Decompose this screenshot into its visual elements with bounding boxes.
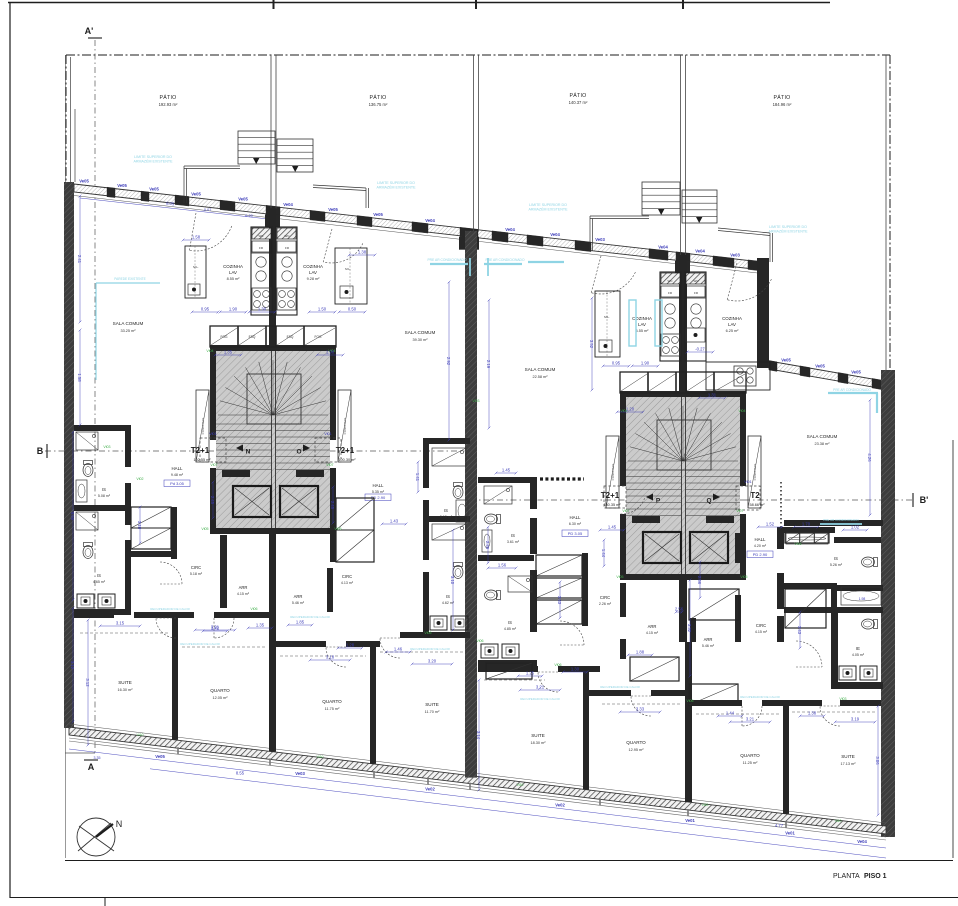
svg-text:3.18: 3.18 — [137, 521, 142, 530]
svg-text:Ve05: Ve05 — [851, 370, 861, 375]
svg-text:1.30: 1.30 — [571, 667, 580, 672]
svg-text:3.43: 3.43 — [557, 596, 562, 605]
svg-text:IS: IS — [444, 508, 448, 513]
svg-text:N: N — [246, 449, 251, 456]
svg-text:Vi06: Vi06 — [250, 607, 257, 611]
svg-text:Ve04: Ve04 — [505, 227, 515, 232]
svg-text:9.48 m²: 9.48 m² — [171, 473, 184, 477]
svg-text:CONDUTAS: CONDUTAS — [753, 464, 757, 481]
svg-text:P: P — [656, 498, 661, 505]
svg-text:102.55 m²: 102.55 m² — [193, 458, 211, 462]
svg-text:4.77: 4.77 — [775, 823, 784, 828]
svg-text:RECUPERADOR DE CALOR: RECUPERADOR DE CALOR — [740, 695, 780, 699]
svg-text:Vi05: Vi05 — [616, 575, 623, 579]
svg-text:IS: IS — [511, 533, 515, 538]
svg-text:5.15 m²: 5.15 m² — [440, 515, 453, 519]
svg-text:12.95 m²: 12.95 m² — [629, 748, 645, 752]
svg-text:3.15: 3.15 — [116, 621, 125, 626]
svg-text:1.38: 1.38 — [358, 250, 367, 255]
svg-text:3.01: 3.01 — [211, 625, 220, 630]
svg-text:HALL: HALL — [755, 537, 767, 542]
svg-text:SUITE: SUITE — [841, 754, 855, 759]
svg-text:Ve05: Ve05 — [117, 183, 127, 188]
svg-text:5.46 m²: 5.46 m² — [292, 601, 305, 605]
svg-text:IS: IS — [508, 620, 512, 625]
svg-text:ESQ: ESQ — [287, 335, 294, 339]
svg-text:Ve05: Ve05 — [191, 191, 201, 196]
svg-text:PD 2.90: PD 2.90 — [753, 552, 768, 557]
svg-text:LAV: LAV — [229, 270, 237, 275]
svg-text:1.20: 1.20 — [626, 407, 635, 412]
svg-text:Ve05: Ve05 — [373, 212, 383, 217]
svg-text:0.95: 0.95 — [201, 307, 210, 312]
svg-text:2.26 m²: 2.26 m² — [599, 602, 612, 606]
svg-text:O: O — [296, 449, 301, 456]
svg-text:Ve05: Ve05 — [815, 363, 825, 368]
svg-text:6.25 m²: 6.25 m² — [726, 329, 740, 333]
svg-text:Vi01: Vi01 — [744, 480, 752, 484]
svg-text:ARR: ARR — [239, 585, 248, 590]
svg-text:RECUPERADOR DE CALOR: RECUPERADOR DE CALOR — [150, 607, 190, 611]
svg-text:ESQ: ESQ — [249, 335, 256, 339]
svg-text:T2+1: T2+1 — [601, 491, 620, 500]
svg-text:Vi04: Vi04 — [206, 349, 213, 353]
svg-text:QUARTO: QUARTO — [626, 740, 646, 745]
svg-text:RECUPERADOR DE CALOR: RECUPERADOR DE CALOR — [520, 697, 560, 701]
svg-text:A': A' — [85, 26, 94, 36]
svg-text:A: A — [88, 762, 95, 772]
svg-text:2.45: 2.45 — [485, 541, 490, 550]
svg-text:4.15 m²: 4.15 m² — [646, 631, 659, 635]
svg-text:HALL: HALL — [570, 515, 582, 520]
svg-text:1.44: 1.44 — [601, 549, 606, 558]
svg-text:IS: IS — [97, 573, 101, 578]
svg-text:FOG: FOG — [221, 335, 228, 339]
svg-text:140.37 m²: 140.37 m² — [569, 100, 588, 105]
svg-text:Ve05: Ve05 — [328, 207, 338, 212]
svg-text:QUARTO: QUARTO — [740, 753, 760, 758]
svg-text:39.30 m²: 39.30 m² — [413, 338, 429, 342]
svg-text:4.65 m²: 4.65 m² — [93, 580, 106, 584]
svg-text:Vi07: Vi07 — [210, 463, 217, 467]
svg-text:-0.27: -0.27 — [695, 347, 705, 352]
svg-text:PISO 1: PISO 1 — [864, 873, 887, 880]
svg-text:12.05 m²: 12.05 m² — [213, 696, 229, 700]
svg-text:1.56: 1.56 — [498, 563, 507, 568]
svg-text:192.93 m²: 192.93 m² — [159, 102, 178, 107]
svg-text:9.28 m²: 9.28 m² — [307, 277, 321, 281]
svg-text:8.55 m²: 8.55 m² — [227, 277, 241, 281]
svg-text:WC: WC — [285, 234, 291, 238]
svg-text:1.25: 1.25 — [526, 671, 535, 676]
svg-text:PLANTA: PLANTA — [833, 873, 860, 880]
svg-text:Vi04: Vi04 — [738, 409, 745, 413]
svg-text:1.44: 1.44 — [726, 711, 735, 716]
svg-text:6.30 m²: 6.30 m² — [569, 522, 582, 526]
svg-text:ARR: ARR — [704, 637, 713, 642]
svg-text:2.92: 2.92 — [446, 357, 451, 366]
svg-text:58.66 m²: 58.66 m² — [750, 503, 766, 507]
svg-text:3.06: 3.06 — [875, 756, 880, 765]
svg-text:Ve03: Ve03 — [295, 771, 305, 776]
svg-text:ARMAZÉM EXISTENTE: ARMAZÉM EXISTENTE — [769, 229, 809, 234]
svg-text:16.30 m²: 16.30 m² — [118, 688, 134, 692]
svg-text:COZINHA: COZINHA — [303, 264, 323, 269]
svg-text:Vi05: Vi05 — [334, 527, 341, 531]
svg-text:1.46: 1.46 — [394, 647, 403, 652]
svg-text:11.25 m²: 11.25 m² — [743, 761, 758, 765]
svg-text:Vi05: Vi05 — [201, 527, 208, 531]
svg-text:3.12: 3.12 — [85, 678, 90, 687]
svg-text:PAREDE EXISTENTE: PAREDE EXISTENTE — [114, 277, 145, 281]
svg-text:1.35: 1.35 — [224, 350, 233, 355]
svg-text:5.18 m²: 5.18 m² — [190, 572, 203, 576]
svg-text:33.25 m²: 33.25 m² — [121, 329, 137, 333]
svg-text:IS: IS — [446, 594, 450, 599]
svg-text:Vi06: Vi06 — [476, 639, 483, 643]
svg-text:M.L.: M.L. — [193, 265, 199, 269]
svg-text:23.38 m²: 23.38 m² — [815, 442, 831, 446]
svg-text:Vi06: Vi06 — [686, 699, 693, 703]
svg-text:4.13 m²: 4.13 m² — [341, 581, 354, 585]
svg-text:2.56: 2.56 — [675, 607, 684, 612]
svg-text:4.05 m²: 4.05 m² — [852, 653, 865, 657]
svg-text:17.13 m²: 17.13 m² — [841, 762, 857, 766]
svg-text:3.35: 3.35 — [94, 756, 101, 760]
svg-text:4.20 m²: 4.20 m² — [754, 544, 767, 548]
svg-text:QUARTO: QUARTO — [210, 688, 230, 693]
svg-text:3.12: 3.12 — [70, 661, 75, 670]
svg-text:6.20: 6.20 — [245, 214, 252, 218]
svg-text:Vi03: Vi03 — [472, 399, 479, 403]
svg-text:6.55 m²: 6.55 m² — [636, 329, 650, 333]
svg-text:PD 3.05: PD 3.05 — [568, 531, 583, 536]
svg-text:Ve04: Ve04 — [658, 244, 668, 249]
svg-text:0.50: 0.50 — [348, 307, 357, 312]
svg-text:1.45: 1.45 — [502, 468, 511, 473]
svg-text:Vi01: Vi01 — [324, 432, 332, 436]
svg-text:4.85 m²: 4.85 m² — [504, 627, 517, 631]
svg-text:SALA COMUM: SALA COMUM — [405, 330, 436, 335]
svg-text:SALA COMUM: SALA COMUM — [113, 321, 144, 326]
svg-text:-0.07: -0.07 — [203, 208, 212, 212]
svg-text:N: N — [116, 819, 123, 829]
svg-text:1.28: 1.28 — [346, 643, 355, 648]
svg-text:Ve03: Ve03 — [595, 237, 605, 242]
svg-text:IS: IS — [834, 556, 838, 561]
svg-text:3.21: 3.21 — [746, 717, 755, 722]
svg-text:CIRC: CIRC — [600, 595, 610, 600]
svg-text:11.75 m²: 11.75 m² — [325, 707, 340, 711]
svg-text:1.52: 1.52 — [766, 522, 775, 527]
svg-text:T2: T2 — [750, 491, 760, 500]
svg-text:22.58 m²: 22.58 m² — [533, 375, 549, 379]
svg-text:Vi03: Vi03 — [839, 697, 846, 701]
svg-text:4.15 m²: 4.15 m² — [237, 592, 250, 596]
svg-text:Vi06: Vi06 — [554, 663, 561, 667]
svg-text:1.88: 1.88 — [636, 650, 645, 655]
svg-text:Vi10: Vi10 — [702, 803, 709, 807]
svg-text:LAV: LAV — [309, 270, 317, 275]
svg-text:ARR: ARR — [648, 624, 657, 629]
svg-text:1.50: 1.50 — [318, 307, 327, 312]
svg-text:Vi07: Vi07 — [622, 509, 629, 513]
svg-text:5.35 m²: 5.35 m² — [372, 490, 385, 494]
svg-text:Ve04: Ve04 — [283, 202, 293, 207]
svg-text:PÁTIO: PÁTIO — [159, 94, 176, 101]
svg-text:3.14: 3.14 — [476, 731, 481, 740]
svg-text:LIMITE SUPERIOR DO: LIMITE SUPERIOR DO — [529, 203, 567, 207]
svg-text:1.90: 1.90 — [229, 307, 238, 312]
svg-text:1.85: 1.85 — [296, 620, 305, 625]
svg-text:1.70: 1.70 — [802, 522, 811, 527]
svg-text:Ve05: Ve05 — [781, 358, 791, 363]
svg-text:5.26 m²: 5.26 m² — [830, 563, 843, 567]
svg-text:Vi03: Vi03 — [103, 445, 110, 449]
svg-text:Ve05: Ve05 — [79, 179, 89, 184]
svg-text:ARMAZÉM EXISTENTE: ARMAZÉM EXISTENTE — [134, 159, 174, 164]
svg-text:HALL: HALL — [373, 483, 385, 488]
svg-text:3.32: 3.32 — [687, 624, 692, 633]
svg-text:LIMITE SUPERIOR DO: LIMITE SUPERIOR DO — [769, 225, 807, 229]
svg-text:3.61 m²: 3.61 m² — [507, 540, 520, 544]
svg-text:5.00: 5.00 — [70, 512, 75, 521]
svg-text:4.15 m²: 4.15 m² — [755, 630, 768, 634]
svg-text:Ve05: Ve05 — [149, 187, 159, 192]
svg-text:2.41: 2.41 — [77, 255, 82, 264]
svg-text:1.31: 1.31 — [708, 393, 717, 398]
svg-text:SALA COMUM: SALA COMUM — [807, 434, 838, 439]
svg-text:2.56: 2.56 — [697, 576, 702, 585]
svg-text:COZINHA: COZINHA — [722, 316, 742, 321]
svg-text:1.02: 1.02 — [851, 525, 860, 530]
svg-text:Ve01: Ve01 — [685, 818, 695, 823]
svg-text:Ve02: Ve02 — [425, 787, 435, 792]
svg-text:M.L.: M.L. — [345, 267, 351, 271]
svg-text:Ve05: Ve05 — [155, 754, 165, 759]
svg-text:3.33: 3.33 — [636, 707, 645, 712]
svg-text:COZINHA: COZINHA — [632, 316, 652, 321]
svg-text:PRE AR CONDICIONADO: PRE AR CONDICIONADO — [823, 518, 859, 522]
svg-text:136.75 m²: 136.75 m² — [369, 102, 388, 107]
svg-text:ARMAZÉM EXISTENTE: ARMAZÉM EXISTENTE — [377, 185, 417, 190]
svg-text:3.19: 3.19 — [851, 717, 860, 722]
svg-text:Vi07: Vi07 — [736, 509, 743, 513]
svg-text:Vi01: Vi01 — [209, 432, 217, 436]
svg-text:4.26: 4.26 — [867, 453, 872, 462]
svg-text:2.45: 2.45 — [330, 501, 335, 510]
svg-text:Vi02: Vi02 — [136, 477, 143, 481]
svg-text:Vi05: Vi05 — [740, 575, 747, 579]
svg-text:1.30: 1.30 — [258, 307, 267, 312]
svg-text:PRE AR CONDICIONADO: PRE AR CONDICIONADO — [485, 258, 524, 262]
svg-text:1.43: 1.43 — [390, 519, 399, 524]
svg-text:SALA COMUM: SALA COMUM — [525, 367, 556, 372]
svg-text:WC: WC — [694, 279, 700, 283]
svg-text:CONDUTAS: CONDUTAS — [611, 464, 615, 481]
svg-text:184.96 m²: 184.96 m² — [773, 102, 792, 107]
svg-text:M.L.: M.L. — [604, 315, 610, 319]
svg-text:2.45: 2.45 — [210, 496, 215, 505]
svg-text:LAV: LAV — [728, 322, 736, 327]
svg-text:1.58: 1.58 — [77, 373, 82, 382]
svg-text:COZINHA: COZINHA — [223, 264, 243, 269]
svg-text:HALL: HALL — [172, 466, 184, 471]
svg-text:Pd 3.05: Pd 3.05 — [170, 481, 185, 486]
svg-text:Ve04: Ve04 — [425, 218, 435, 223]
svg-text:3.20: 3.20 — [428, 659, 437, 664]
svg-text:T2+1: T2+1 — [336, 446, 355, 455]
svg-text:WC: WC — [259, 234, 265, 238]
svg-text:CIRC: CIRC — [342, 574, 352, 579]
svg-text:PÁTIO: PÁTIO — [773, 94, 790, 101]
svg-text:LIMITE SUPERIOR DO: LIMITE SUPERIOR DO — [377, 181, 415, 185]
svg-text:8.55: 8.55 — [236, 771, 245, 776]
svg-text:Vi06: Vi06 — [424, 631, 431, 635]
svg-text:Vi06: Vi06 — [794, 542, 801, 546]
svg-text:Vi10: Vi10 — [317, 755, 324, 759]
svg-text:1.98: 1.98 — [326, 350, 335, 355]
svg-text:2.19: 2.19 — [486, 360, 491, 369]
svg-text:PÁTIO: PÁTIO — [369, 94, 386, 101]
svg-text:IE: IE — [856, 646, 860, 651]
svg-text:SUITE: SUITE — [425, 702, 439, 707]
svg-text:QUARTO: QUARTO — [322, 699, 342, 704]
svg-text:SUITE: SUITE — [118, 680, 132, 685]
svg-text:1.35: 1.35 — [256, 623, 265, 628]
svg-text:RECUPERADOR DE CALOR: RECUPERADOR DE CALOR — [410, 647, 450, 651]
svg-text:Vi10: Vi10 — [137, 733, 144, 737]
svg-text:ARR: ARR — [294, 594, 303, 599]
svg-text:3.43: 3.43 — [797, 626, 802, 635]
svg-text:Ve04: Ve04 — [695, 249, 705, 254]
svg-text:1.45: 1.45 — [608, 525, 617, 530]
svg-text:RECUPERADOR DE CALOR: RECUPERADOR DE CALOR — [180, 642, 220, 646]
svg-text:LAV: LAV — [638, 322, 646, 327]
svg-text:CONDUTAS: CONDUTAS — [201, 418, 205, 435]
svg-text:1.41: 1.41 — [415, 473, 420, 482]
svg-text:IS: IS — [102, 487, 106, 492]
svg-text:8.05: 8.05 — [166, 201, 175, 207]
svg-text:1.90: 1.90 — [641, 361, 650, 366]
svg-text:CIRC: CIRC — [756, 623, 766, 628]
svg-text:WC: WC — [668, 279, 674, 283]
svg-text:B': B' — [920, 495, 929, 505]
svg-text:0.95: 0.95 — [612, 361, 621, 366]
svg-text:18.30 m²: 18.30 m² — [531, 741, 547, 745]
svg-text:Ve01: Ve01 — [785, 830, 795, 835]
svg-text:3.21: 3.21 — [536, 685, 545, 690]
svg-text:Ve04: Ve04 — [550, 232, 560, 237]
svg-text:RECUPERADOR DE CALOR: RECUPERADOR DE CALOR — [600, 685, 640, 689]
svg-text:SUITE: SUITE — [531, 733, 545, 738]
svg-text:LIMITE SUPERIOR DO: LIMITE SUPERIOR DO — [134, 155, 172, 159]
svg-text:B: B — [37, 446, 44, 456]
svg-text:1.98: 1.98 — [859, 597, 866, 601]
svg-text:FOG: FOG — [315, 335, 322, 339]
svg-text:PÁTIO: PÁTIO — [569, 92, 586, 99]
svg-text:5.08 m²: 5.08 m² — [98, 494, 111, 498]
svg-text:CIRC: CIRC — [191, 565, 201, 570]
svg-text:Vi10: Vi10 — [835, 819, 842, 823]
svg-text:3.18: 3.18 — [326, 655, 335, 660]
svg-text:130.35 m²: 130.35 m² — [603, 503, 621, 507]
svg-text:3.52: 3.52 — [589, 340, 594, 349]
svg-text:Ve03: Ve03 — [730, 252, 740, 257]
svg-text:Ve04: Ve04 — [857, 839, 867, 844]
svg-text:Ve02: Ve02 — [555, 803, 565, 808]
svg-text:PRE AR CONDICIONADO: PRE AR CONDICIONADO — [833, 388, 871, 392]
svg-text:11.70 m²: 11.70 m² — [425, 710, 440, 714]
svg-text:Vi10: Vi10 — [517, 783, 524, 787]
svg-text:RECUPERADOR DE CALOR: RECUPERADOR DE CALOR — [290, 615, 330, 619]
svg-text:CONDUTAS: CONDUTAS — [343, 418, 347, 435]
svg-text:ARMAZÉM EXISTENTE: ARMAZÉM EXISTENTE — [529, 207, 569, 212]
svg-text:Q: Q — [706, 498, 711, 505]
svg-text:3.10: 3.10 — [450, 576, 455, 585]
svg-text:1.58: 1.58 — [192, 235, 201, 240]
svg-text:1.38: 1.38 — [808, 711, 817, 716]
svg-text:Ve05: Ve05 — [238, 197, 248, 202]
svg-text:Vi07: Vi07 — [326, 463, 333, 467]
svg-text:PRE AR CONDICIONADO: PRE AR CONDICIONADO — [427, 258, 466, 262]
svg-text:5.46 m²: 5.46 m² — [702, 644, 715, 648]
